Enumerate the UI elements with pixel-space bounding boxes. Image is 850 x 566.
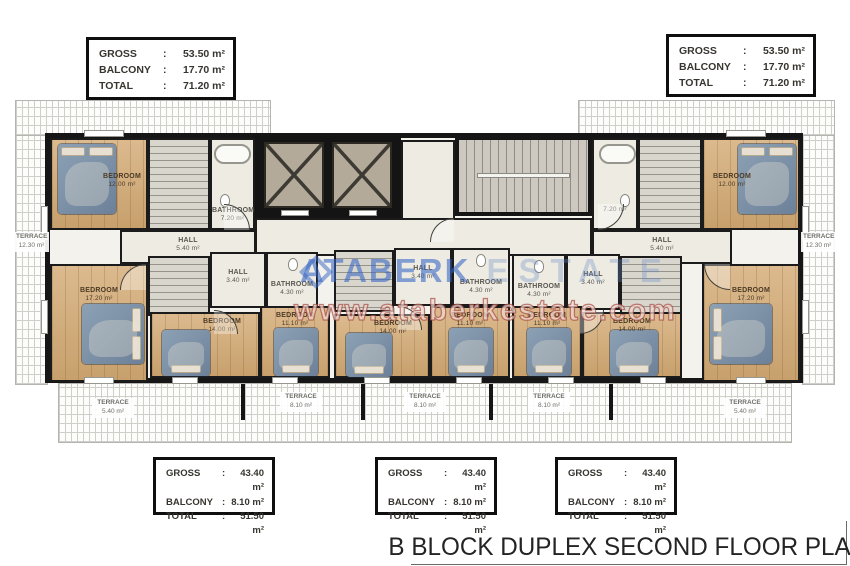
window bbox=[726, 130, 766, 137]
staircase bbox=[638, 138, 702, 230]
elevator-door bbox=[349, 210, 377, 216]
room-label: HALL5.40 m² bbox=[122, 236, 254, 254]
window bbox=[84, 130, 124, 137]
bed bbox=[610, 330, 658, 376]
central-staircase bbox=[455, 136, 592, 216]
area-info-box-top-left: GROSS:53.50 m² BALCONY:17.70 m² TOTAL:71… bbox=[86, 37, 236, 100]
terrace-door bbox=[172, 377, 198, 384]
info-row: BALCONY:17.70 m² bbox=[99, 63, 225, 79]
terrace-door bbox=[272, 377, 298, 384]
terrace-divider bbox=[361, 384, 365, 420]
bedroom: BEDROOM14.00 m² bbox=[150, 312, 260, 378]
bedroom: BEDROOM12.00 m² bbox=[50, 138, 148, 230]
terrace-label: TERRACE5.40 m² bbox=[92, 398, 134, 418]
staircase bbox=[148, 256, 210, 316]
info-row: BALCONY:8.10 m² bbox=[166, 496, 264, 510]
terrace-label: TERRACE12.30 m² bbox=[801, 232, 836, 252]
terrace-label: TERRACE8.10 m² bbox=[280, 392, 322, 412]
terrace-door bbox=[456, 377, 482, 384]
info-row: GROSS:53.50 m² bbox=[679, 44, 805, 60]
terrace-door bbox=[548, 377, 574, 384]
toilet-icon bbox=[288, 258, 298, 271]
hall: HALL3.40 m² bbox=[210, 252, 266, 308]
floor-plan-canvas: TERRACE12.30 m² TERRACE12.30 m² TERRACE5… bbox=[0, 0, 850, 566]
bed bbox=[274, 328, 318, 376]
bedroom: BEDROOM12.00 m² bbox=[702, 138, 800, 230]
elevator-door bbox=[281, 210, 309, 216]
window bbox=[802, 300, 809, 334]
terrace-door bbox=[84, 377, 114, 384]
window bbox=[41, 300, 48, 334]
info-row: BALCONY:8.10 m² bbox=[568, 496, 666, 510]
room-label: BEDROOM17.20 m² bbox=[704, 286, 798, 304]
info-row: TOTAL:51.50 m² bbox=[166, 510, 264, 539]
terrace-door bbox=[364, 377, 390, 384]
stair-landing bbox=[477, 173, 570, 178]
watermark-url: www.ataberkestate.com bbox=[294, 294, 677, 328]
elevator-core bbox=[255, 136, 401, 218]
info-row: GROSS:53.50 m² bbox=[99, 47, 225, 63]
area-info-box-bottom-2: GROSS:43.40 m² BALCONY:8.10 m² TOTAL:51.… bbox=[375, 457, 497, 515]
title-block: B BLOCK DUPLEX SECOND FLOOR PLAN bbox=[411, 521, 847, 565]
bed bbox=[710, 304, 772, 364]
terrace-strip-right bbox=[802, 135, 835, 385]
terrace-divider bbox=[489, 384, 493, 420]
info-row: GROSS:43.40 m² bbox=[568, 467, 666, 496]
terrace-divider bbox=[609, 384, 613, 420]
room-label: HALL3.40 m² bbox=[212, 268, 264, 286]
terrace-label: TERRACE8.10 m² bbox=[404, 392, 446, 412]
bed bbox=[162, 330, 210, 376]
terrace-label: TERRACE8.10 m² bbox=[528, 392, 570, 412]
room-label: HALL5.40 m² bbox=[594, 236, 730, 254]
terrace-door bbox=[736, 377, 766, 384]
bed bbox=[82, 304, 144, 364]
page-title: B BLOCK DUPLEX SECOND FLOOR PLAN bbox=[389, 533, 850, 564]
bed bbox=[449, 328, 493, 376]
elevator-shaft-icon bbox=[264, 142, 324, 208]
room-label: BEDROOM12.00 m² bbox=[706, 172, 758, 190]
bed bbox=[346, 333, 392, 377]
roof-hatch-top-right bbox=[578, 100, 835, 136]
info-row: BALCONY:17.70 m² bbox=[679, 60, 805, 76]
elevator-shaft-icon bbox=[332, 142, 392, 208]
info-row: GROSS:43.40 m² bbox=[166, 467, 264, 496]
area-info-box-top-right: GROSS:53.50 m² BALCONY:17.70 m² TOTAL:71… bbox=[666, 34, 816, 97]
staircase bbox=[148, 138, 210, 230]
area-info-box-bottom-3: GROSS:43.40 m² BALCONY:8.10 m² TOTAL:51.… bbox=[555, 457, 677, 515]
watermark-brand: ATABERKESTATE bbox=[300, 252, 672, 290]
info-row: BALCONY:8.10 m² bbox=[388, 496, 486, 510]
bed bbox=[527, 328, 571, 376]
area-info-box-bottom-1: GROSS:43.40 m² BALCONY:8.10 m² TOTAL:51.… bbox=[153, 457, 275, 515]
terrace-label: TERRACE12.30 m² bbox=[14, 232, 49, 252]
bathtub-icon bbox=[599, 144, 636, 164]
bathtub-icon bbox=[214, 144, 251, 164]
info-row: TOTAL:71.20 m² bbox=[679, 76, 805, 92]
terrace-divider bbox=[241, 384, 245, 420]
info-row: GROSS:43.40 m² bbox=[388, 467, 486, 496]
corridor bbox=[401, 140, 455, 220]
room-label: BEDROOM12.00 m² bbox=[96, 172, 148, 190]
roof-hatch-top-left bbox=[15, 100, 271, 136]
terrace-label: TERRACE5.40 m² bbox=[724, 398, 766, 418]
terrace-door bbox=[640, 377, 666, 384]
terrace-strip-left bbox=[15, 135, 48, 385]
info-row: TOTAL:71.20 m² bbox=[99, 79, 225, 95]
